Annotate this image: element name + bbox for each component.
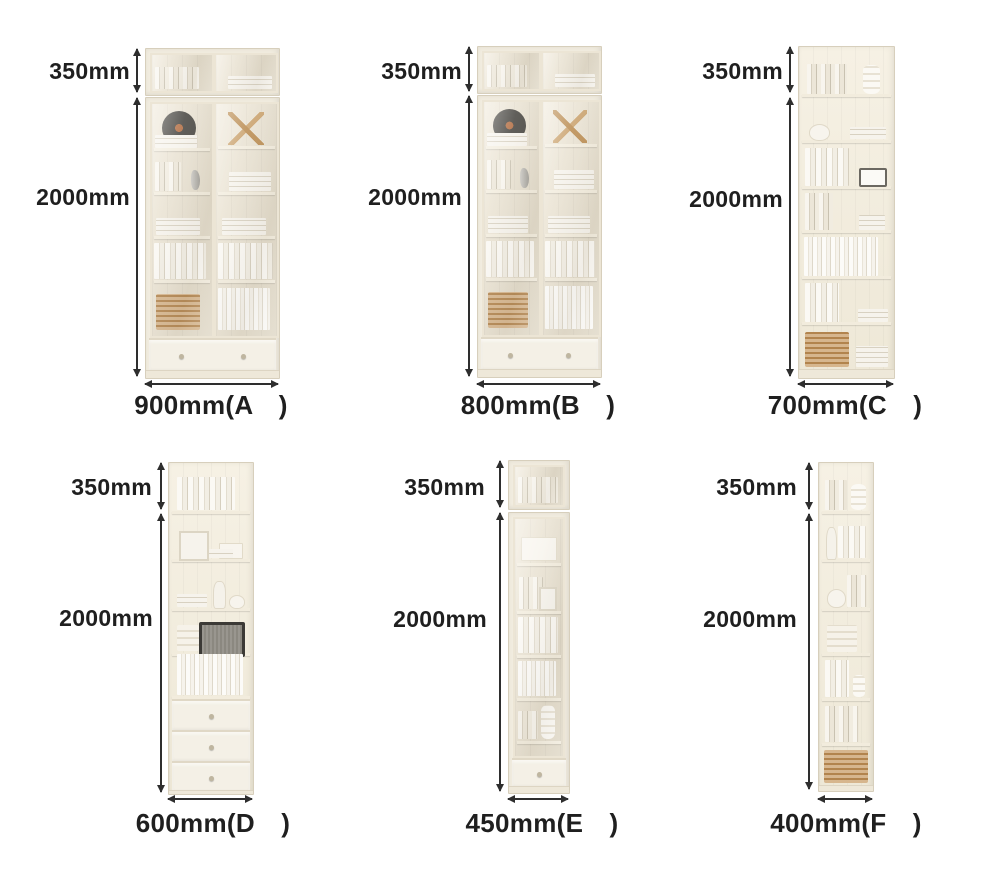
shelf-line xyxy=(545,278,597,281)
speaker-decor xyxy=(199,622,245,657)
drawer-knob xyxy=(179,354,184,359)
bottle-decor xyxy=(826,527,837,560)
shelf-line xyxy=(802,276,891,279)
plinth xyxy=(478,369,601,377)
books-decor xyxy=(487,65,527,87)
dim-label-top-f: 350mm xyxy=(687,474,797,500)
plinth xyxy=(819,785,873,791)
basket-decor xyxy=(805,332,849,367)
shelf-line xyxy=(802,230,891,233)
vase-decor xyxy=(851,484,866,510)
dim-label-top-e: 350mm xyxy=(375,474,485,500)
books-decor xyxy=(805,193,833,230)
books-decor xyxy=(545,241,595,277)
drawer xyxy=(172,761,250,793)
books-decor xyxy=(154,243,206,279)
stacked-books-decor xyxy=(487,133,527,146)
dim-arrow-top-e xyxy=(499,461,501,507)
shelf-line xyxy=(822,698,870,701)
shelf-line xyxy=(822,511,870,514)
stacked-books-decor xyxy=(548,216,590,233)
shelf-line xyxy=(822,653,870,656)
clock-decor xyxy=(827,589,846,608)
shelf-line xyxy=(172,511,250,514)
dim-label-width-f: 400mm(F ) xyxy=(746,808,946,838)
dim-label-height-c: 2000mm xyxy=(673,186,783,212)
shelf-line xyxy=(154,148,210,151)
cabinet-e-hutch xyxy=(508,460,570,510)
dim-arrow-height-e xyxy=(499,513,501,791)
books-decor xyxy=(825,480,847,510)
stacked-books-decor xyxy=(858,309,888,322)
ornament-decor xyxy=(191,170,200,190)
plinth xyxy=(509,786,569,793)
drawer xyxy=(172,730,250,762)
photo-frame-decor xyxy=(539,587,557,611)
stacked-books-decor xyxy=(850,127,886,139)
dim-arrow-height-a xyxy=(136,98,138,376)
drawer-knob xyxy=(508,353,513,358)
books-decor xyxy=(177,654,243,695)
stacked-books-decor xyxy=(222,218,266,235)
goblet-decor xyxy=(853,675,865,697)
shelf-line xyxy=(486,278,537,281)
shelf-line xyxy=(218,192,275,195)
dim-label-top-b: 350mm xyxy=(352,58,462,84)
bookcase-dimension-diagram: 350mm 2000mm xyxy=(0,0,1000,873)
cabinet-e-body xyxy=(508,512,570,794)
drawer xyxy=(481,337,598,371)
books-decor xyxy=(804,237,878,276)
photo-frame-decor xyxy=(179,531,209,561)
bottle-decor xyxy=(213,581,226,609)
shelf-line xyxy=(218,146,275,149)
cabinet-a-body xyxy=(145,97,280,379)
dim-label-width-a: 900mm(A ) xyxy=(111,390,311,420)
drawer xyxy=(172,699,250,731)
shelf-line xyxy=(822,608,870,611)
shelf-line xyxy=(802,322,891,325)
shelf-line xyxy=(517,563,561,566)
shelf-line xyxy=(218,280,275,283)
stacked-books-decor xyxy=(488,216,528,233)
stacked-books-decor xyxy=(155,135,197,148)
dim-arrow-height-b xyxy=(468,96,470,376)
cabinet-c xyxy=(798,46,895,379)
dim-arrow-width-c xyxy=(798,383,893,385)
stacked-books-decor xyxy=(229,172,271,191)
books-decor xyxy=(807,64,847,94)
dim-label-top-a: 350mm xyxy=(20,58,130,84)
books-decor xyxy=(838,526,866,558)
dim-label-height-e: 2000mm xyxy=(377,606,487,632)
shelf-line xyxy=(486,146,537,149)
books-decor xyxy=(545,286,593,329)
shelf-line xyxy=(486,190,537,193)
dim-label-height-d: 2000mm xyxy=(43,605,153,631)
books-decor xyxy=(155,67,199,89)
drawer-knob xyxy=(241,354,246,359)
cabinet-b-hutch xyxy=(477,46,602,94)
glass-door xyxy=(541,51,601,91)
books-decor xyxy=(177,477,235,510)
dim-label-width-c: 700mm(C ) xyxy=(745,390,945,420)
glass-door xyxy=(214,102,279,338)
book-stand-decor xyxy=(228,112,264,145)
cabinet-b-body xyxy=(477,95,602,378)
dim-arrow-top-d xyxy=(160,463,162,509)
stacked-books-decor xyxy=(156,218,200,235)
shelf-line xyxy=(517,611,561,614)
books-decor xyxy=(518,617,558,653)
drawer xyxy=(149,338,276,372)
dim-label-height-f: 2000mm xyxy=(687,606,797,632)
stacked-books-decor xyxy=(859,215,885,230)
glass-door xyxy=(214,53,278,93)
stacked-books-decor xyxy=(554,170,594,189)
dim-label-width-e: 450mm(E ) xyxy=(442,808,642,838)
plinth xyxy=(799,369,894,378)
glass-door xyxy=(150,102,214,338)
basket-decor xyxy=(488,292,528,328)
book-stand-decor xyxy=(553,110,587,143)
ornament-decor xyxy=(520,168,529,188)
box-decor xyxy=(521,537,557,561)
basket-decor xyxy=(824,750,868,783)
dim-label-top-d: 350mm xyxy=(42,474,152,500)
shelf-line xyxy=(154,236,210,239)
shelf-line xyxy=(545,144,597,147)
glass-door xyxy=(482,100,541,337)
vase-decor xyxy=(863,65,880,94)
shelf-line xyxy=(822,743,870,746)
stacked-books-decor xyxy=(228,76,272,89)
drawer-knob xyxy=(209,714,214,719)
glass-door xyxy=(150,53,214,93)
dim-arrow-top-c xyxy=(789,47,791,92)
dim-arrow-top-a xyxy=(136,49,138,92)
books-decor xyxy=(486,241,534,277)
dim-arrow-height-d xyxy=(160,514,162,792)
drawer-knob xyxy=(209,745,214,750)
glass-door xyxy=(482,51,541,91)
books-decor xyxy=(155,162,181,191)
drawer-knob xyxy=(566,353,571,358)
vase-decor xyxy=(541,705,555,739)
glass-door xyxy=(541,100,601,337)
shelf-line xyxy=(802,94,891,97)
dim-label-width-d: 600mm(D ) xyxy=(113,808,313,838)
dim-label-height-a: 2000mm xyxy=(20,184,130,210)
dim-arrow-width-e xyxy=(508,798,568,800)
dim-arrow-height-c xyxy=(789,98,791,376)
shelf-line xyxy=(517,655,561,658)
shelf-line xyxy=(545,190,597,193)
dim-arrow-top-f xyxy=(808,463,810,509)
books-decor xyxy=(825,706,859,742)
plinth xyxy=(146,370,279,378)
cabinet-f xyxy=(818,462,874,792)
stacked-books-decor xyxy=(555,74,595,87)
basket-decor xyxy=(156,294,200,330)
stacked-books-decor xyxy=(856,346,888,367)
books-decor xyxy=(847,575,867,607)
dim-arrow-height-f xyxy=(808,514,810,789)
cabinet-d xyxy=(168,462,254,795)
glass-door xyxy=(513,517,565,758)
books-decor xyxy=(518,477,558,503)
books-decor xyxy=(487,160,511,189)
flip-clock-decor xyxy=(859,168,887,187)
books-decor xyxy=(825,660,849,697)
dim-arrow-width-f xyxy=(818,798,872,800)
teapot-decor xyxy=(809,124,830,141)
shelf-line xyxy=(517,698,561,701)
books-decor xyxy=(218,288,270,330)
books-decor xyxy=(218,243,273,279)
books-decor xyxy=(805,148,849,186)
glass-door xyxy=(513,465,565,507)
dim-label-width-b: 800mm(B ) xyxy=(438,390,638,420)
shelf-line xyxy=(154,280,210,283)
ornament-decor xyxy=(229,595,245,609)
stacked-books-decor xyxy=(209,549,233,558)
shelf-line xyxy=(154,192,210,195)
dim-arrow-width-b xyxy=(477,383,600,385)
drawer xyxy=(512,758,566,788)
stacked-books-decor xyxy=(177,594,207,607)
dim-label-height-b: 2000mm xyxy=(352,184,462,210)
books-decor xyxy=(518,711,538,739)
books-decor xyxy=(805,283,839,322)
drawer-knob xyxy=(537,772,542,777)
cabinet-a-hutch xyxy=(145,48,280,96)
dim-arrow-top-b xyxy=(468,47,470,91)
shelf-line xyxy=(218,236,275,239)
plinth xyxy=(169,790,253,794)
towels-decor xyxy=(177,625,199,651)
shelf-line xyxy=(517,741,561,744)
drawer-knob xyxy=(209,776,214,781)
dim-label-top-c: 350mm xyxy=(673,58,783,84)
shelf-line xyxy=(486,234,537,237)
books-decor xyxy=(518,661,556,696)
towels-decor xyxy=(827,625,857,652)
shelf-line xyxy=(545,234,597,237)
dim-arrow-width-a xyxy=(145,383,278,385)
dim-arrow-width-d xyxy=(168,798,252,800)
